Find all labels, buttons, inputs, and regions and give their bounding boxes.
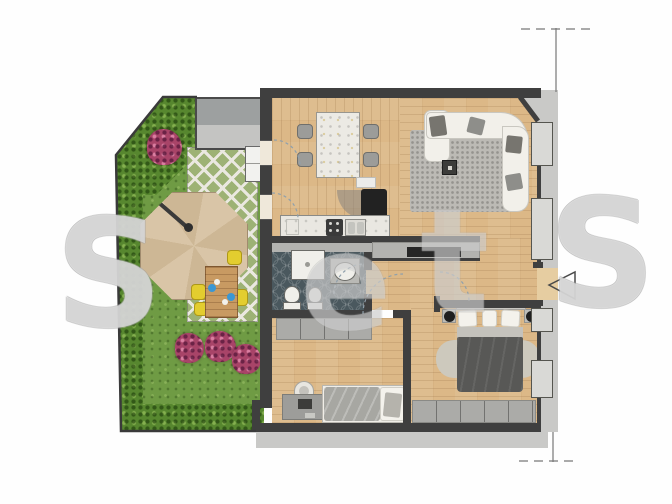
wall-left xyxy=(260,88,272,140)
bed-pillow xyxy=(482,310,497,327)
cooktop xyxy=(326,219,343,236)
hedge-bottom xyxy=(116,404,264,431)
sofa-cushion xyxy=(505,135,523,154)
plate xyxy=(222,299,228,305)
entrance-jamb xyxy=(533,262,543,268)
washbasin xyxy=(334,262,356,281)
single-bed-pillow xyxy=(380,387,405,421)
sofa-cushion xyxy=(505,173,524,192)
desk-item xyxy=(305,413,315,418)
burner xyxy=(329,229,332,232)
window-bedroom xyxy=(531,308,553,332)
shower-drain xyxy=(305,262,310,267)
kitchen-item xyxy=(356,177,376,188)
wall-right xyxy=(537,166,541,198)
flower-bush xyxy=(147,129,182,165)
bowl-blue xyxy=(227,293,235,301)
wall-bottom xyxy=(252,423,541,432)
window-living-door xyxy=(531,198,553,260)
window-living-top xyxy=(531,122,553,166)
single-bed-duvet xyxy=(324,387,380,421)
coffee-table-item xyxy=(448,166,452,170)
kids-wardrobe xyxy=(276,318,372,340)
garden-door-opening xyxy=(260,140,272,166)
exterior-wall-bottom xyxy=(256,432,548,448)
flower-bush xyxy=(232,344,261,374)
dining-chair xyxy=(363,124,379,139)
toilet-tank xyxy=(283,302,301,310)
sideboard-wall-edge xyxy=(372,258,480,261)
garden-door-opening xyxy=(260,194,272,220)
tv xyxy=(407,247,461,257)
flower-bush xyxy=(175,333,204,363)
entrance-opening xyxy=(537,268,558,300)
wall-top xyxy=(260,88,541,98)
bidet-tank xyxy=(307,302,323,310)
master-wardrobe xyxy=(412,400,536,423)
washbasin-vanity xyxy=(330,258,360,284)
garden-table xyxy=(205,266,238,318)
burner xyxy=(336,229,339,232)
dining-chair xyxy=(297,124,313,139)
sink-basin xyxy=(348,222,355,234)
garden-shed xyxy=(195,97,264,150)
parasol-hub xyxy=(184,223,193,232)
bidet xyxy=(307,287,323,310)
wall-right xyxy=(537,332,541,360)
wall-left xyxy=(260,166,272,194)
kitchen-sink xyxy=(345,219,366,236)
plate xyxy=(214,279,220,285)
bathroom-south-wall xyxy=(260,310,372,318)
duvet xyxy=(457,337,523,392)
single-bed xyxy=(322,385,406,423)
bedroom-divider-wall xyxy=(403,310,411,423)
wall-right xyxy=(537,398,541,423)
garden-shed-roof xyxy=(197,99,262,125)
dining-table xyxy=(316,112,360,178)
master-north-wall xyxy=(434,300,541,308)
toilet xyxy=(283,286,301,310)
bidet-bowl xyxy=(308,287,322,303)
shower xyxy=(291,250,325,280)
watermark-letter: S xyxy=(548,180,656,330)
laptop xyxy=(298,399,312,409)
floor-plan: S e t S xyxy=(0,0,672,504)
bathroom-east-wall xyxy=(364,252,372,270)
bed-pillow xyxy=(501,310,521,328)
toilet-bowl xyxy=(284,286,300,303)
bowl-blue xyxy=(208,284,216,292)
pillow-inner xyxy=(383,392,402,418)
burner xyxy=(336,222,339,225)
sofa-cushion xyxy=(429,115,448,137)
burner xyxy=(329,222,332,225)
sink-basin xyxy=(357,222,364,234)
bed-pillow xyxy=(458,310,478,328)
garden-chair xyxy=(227,250,242,265)
garden-chair xyxy=(191,284,206,300)
window-bedroom xyxy=(531,360,553,398)
master-door-jamb xyxy=(434,296,440,312)
sofa xyxy=(424,110,530,214)
counter-sketch xyxy=(286,219,299,235)
bedside-lamp xyxy=(444,311,455,322)
desk xyxy=(282,394,326,420)
dining-chair xyxy=(363,152,379,167)
double-bed xyxy=(456,304,526,392)
coffee-table xyxy=(442,160,457,175)
dining-chair xyxy=(297,152,313,167)
